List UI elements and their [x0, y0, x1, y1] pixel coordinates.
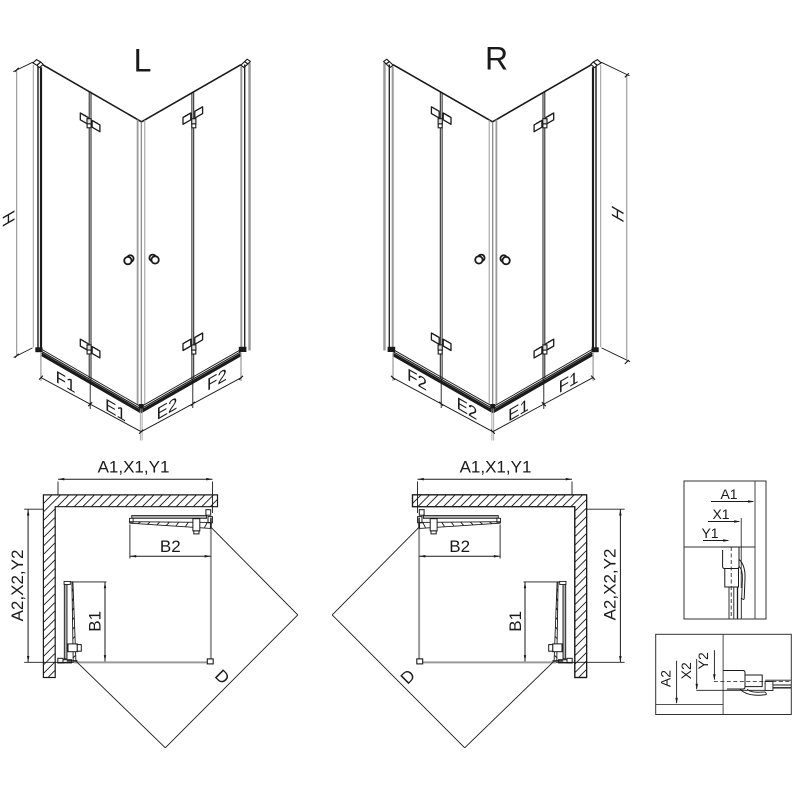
svg-text:X2: X2	[678, 662, 694, 679]
svg-text:X1: X1	[712, 506, 729, 522]
svg-text:A2: A2	[657, 670, 673, 687]
svg-text:Y1: Y1	[701, 525, 718, 541]
svg-text:A2,X2,Y2: A2,X2,Y2	[600, 549, 619, 621]
svg-text:A1,X1,Y1: A1,X1,Y1	[98, 458, 170, 477]
svg-text:A2,X2,Y2: A2,X2,Y2	[8, 550, 27, 622]
svg-text:A1,X1,Y1: A1,X1,Y1	[460, 458, 532, 477]
svg-text:L: L	[134, 43, 152, 79]
svg-text:Y2: Y2	[695, 652, 711, 669]
svg-text:B2: B2	[449, 537, 470, 556]
svg-text:B2: B2	[160, 537, 181, 556]
svg-text:B1: B1	[86, 611, 105, 632]
svg-text:A1: A1	[720, 486, 737, 502]
svg-text:R: R	[485, 41, 508, 77]
svg-text:B1: B1	[506, 611, 525, 632]
